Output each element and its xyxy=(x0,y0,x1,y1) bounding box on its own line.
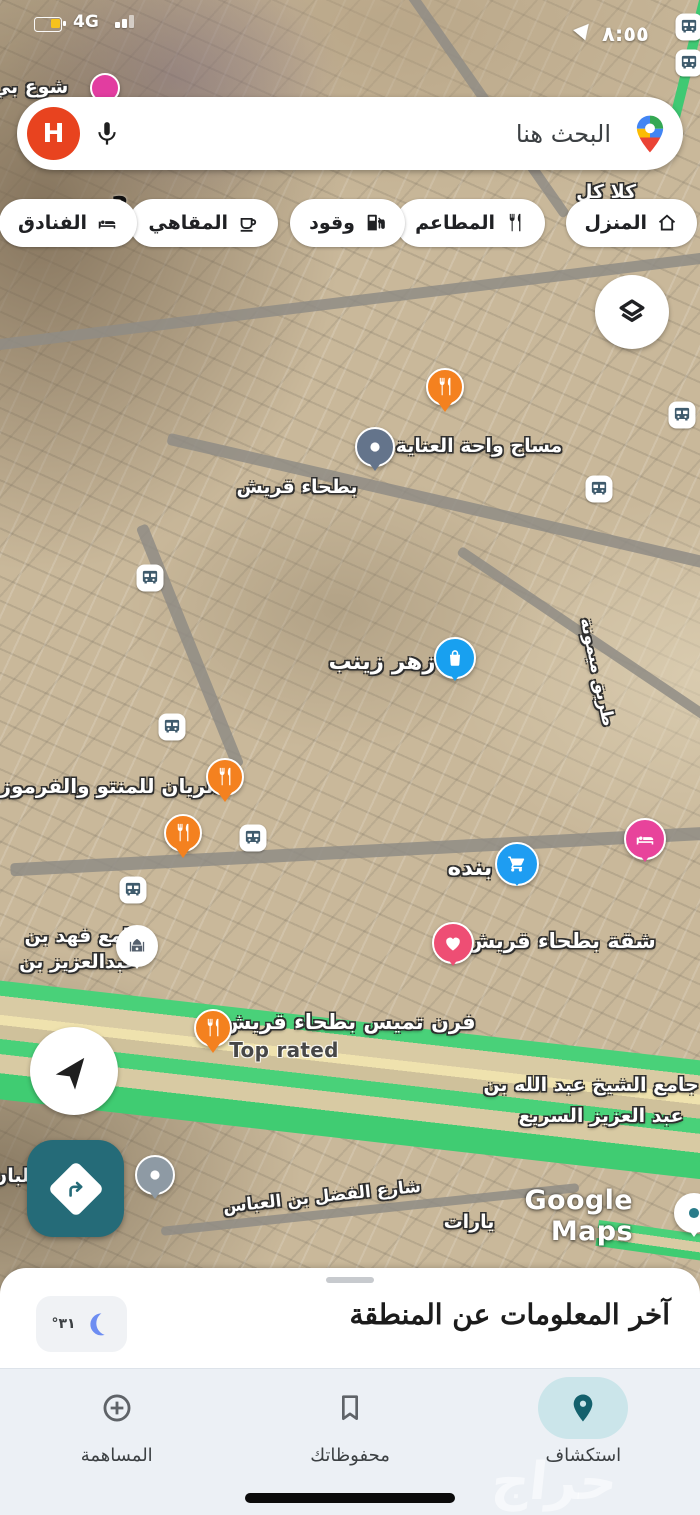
google-maps-logo-icon xyxy=(629,113,671,155)
bus-stop-icon[interactable] xyxy=(120,877,147,904)
shopping-cart-pin[interactable] xyxy=(495,842,539,886)
map-label: يارات xyxy=(444,1211,495,1233)
directions-button[interactable] xyxy=(27,1140,124,1237)
location-active-icon xyxy=(573,19,595,41)
bus-stop-icon[interactable] xyxy=(669,402,696,429)
drag-handle[interactable] xyxy=(326,1277,374,1283)
map-label: شوع بي xyxy=(0,76,68,98)
home-indicator[interactable] xyxy=(245,1493,455,1503)
top-rated-label: Top rated xyxy=(229,1038,339,1062)
map-label: فرن تميس بطحاء قريش xyxy=(222,1010,475,1034)
chip-label: المنزل xyxy=(585,212,647,234)
clock: ٨:٥٥ xyxy=(602,22,649,46)
spa-pin[interactable] xyxy=(355,427,395,467)
map-label: مساج واحة العناية xyxy=(396,435,563,457)
chip-label: المقاهي xyxy=(148,212,228,234)
cafe-icon xyxy=(237,212,259,234)
weather-widget[interactable]: ٣١° xyxy=(36,1296,127,1352)
nav-label: محفوظاتك xyxy=(310,1445,390,1466)
haraj-watermark: حراج xyxy=(489,1452,620,1512)
hotel-icon xyxy=(96,212,118,234)
network-type: 4G xyxy=(73,12,99,32)
compass-navigation-button[interactable] xyxy=(30,1027,118,1115)
nav-contribute[interactable]: المساهمة xyxy=(17,1377,217,1466)
directions-icon xyxy=(47,1160,104,1217)
favorite-heart-pin[interactable] xyxy=(432,922,474,964)
generic-pin[interactable] xyxy=(135,1155,175,1195)
mosque-pin[interactable] xyxy=(116,925,158,967)
chip-label: المطاعم xyxy=(415,212,495,234)
road xyxy=(456,546,700,744)
layers-icon xyxy=(615,295,649,329)
search-input[interactable]: البحث هنا xyxy=(134,120,617,148)
restaurant-pin[interactable] xyxy=(426,368,464,406)
bottom-sheet[interactable]: آخر المعلومات عن المنطقة ٣١° xyxy=(0,1268,700,1368)
map-label: الريان للمنتو والفرموزة xyxy=(0,774,220,798)
map-label: عبد العزيز السريع xyxy=(519,1105,684,1127)
chip-label: وقود xyxy=(309,212,355,234)
explore-pin-icon xyxy=(538,1377,628,1439)
bus-stop-icon[interactable] xyxy=(137,565,164,592)
map-label: زهر زينب xyxy=(328,649,435,675)
navigation-arrow-icon xyxy=(53,1050,95,1092)
chip-fuel[interactable]: وقود xyxy=(290,199,405,247)
road xyxy=(0,251,700,352)
road xyxy=(10,827,700,877)
map-label: شقة بطحاء قريش xyxy=(466,929,656,953)
bus-stop-icon[interactable] xyxy=(240,825,267,852)
layers-button[interactable] xyxy=(595,275,669,349)
status-bar: 4G ٨:٥٥ xyxy=(0,0,700,46)
home-icon xyxy=(656,212,678,234)
bus-stop-icon[interactable] xyxy=(586,476,613,503)
fuel-icon xyxy=(364,212,386,234)
google-maps-watermark: Google Maps xyxy=(499,1185,633,1247)
chip-home[interactable]: المنزل xyxy=(566,199,697,247)
map-label: جامع الشيخ عبد الله بن xyxy=(483,1074,698,1096)
hotel-pin[interactable] xyxy=(624,818,666,860)
restaurant-icon xyxy=(504,212,526,234)
bus-stop-icon[interactable] xyxy=(676,50,700,77)
restaurant-pin[interactable] xyxy=(164,814,202,852)
chip-label: الفنادق xyxy=(18,212,87,234)
chip-cafes[interactable]: المقاهي xyxy=(129,199,278,247)
shopping-bag-pin[interactable] xyxy=(434,637,476,679)
bookmark-icon xyxy=(305,1377,395,1439)
signal-bars-icon xyxy=(115,15,134,28)
road xyxy=(136,523,245,769)
moon-icon xyxy=(82,1309,112,1339)
chip-hotels[interactable]: الفنادق xyxy=(0,199,137,247)
nav-saved[interactable]: محفوظاتك xyxy=(250,1377,450,1466)
temperature: ٣١° xyxy=(51,1316,75,1332)
account-avatar[interactable]: H xyxy=(27,107,80,160)
restaurant-pin[interactable] xyxy=(206,758,244,796)
add-circle-icon xyxy=(72,1377,162,1439)
chip-restaurants[interactable]: المطاعم xyxy=(396,199,545,247)
nav-label: المساهمة xyxy=(81,1445,153,1466)
battery-icon xyxy=(34,17,62,32)
map-label: بطحاء قريش xyxy=(236,476,357,498)
restaurant-pin[interactable] xyxy=(194,1009,232,1047)
sheet-title: آخر المعلومات عن المنطقة xyxy=(349,1298,670,1331)
microphone-icon[interactable] xyxy=(92,119,122,149)
map-label: بنده xyxy=(448,855,493,881)
search-bar[interactable]: البحث هنا H xyxy=(17,97,683,170)
bus-stop-icon[interactable] xyxy=(159,714,186,741)
